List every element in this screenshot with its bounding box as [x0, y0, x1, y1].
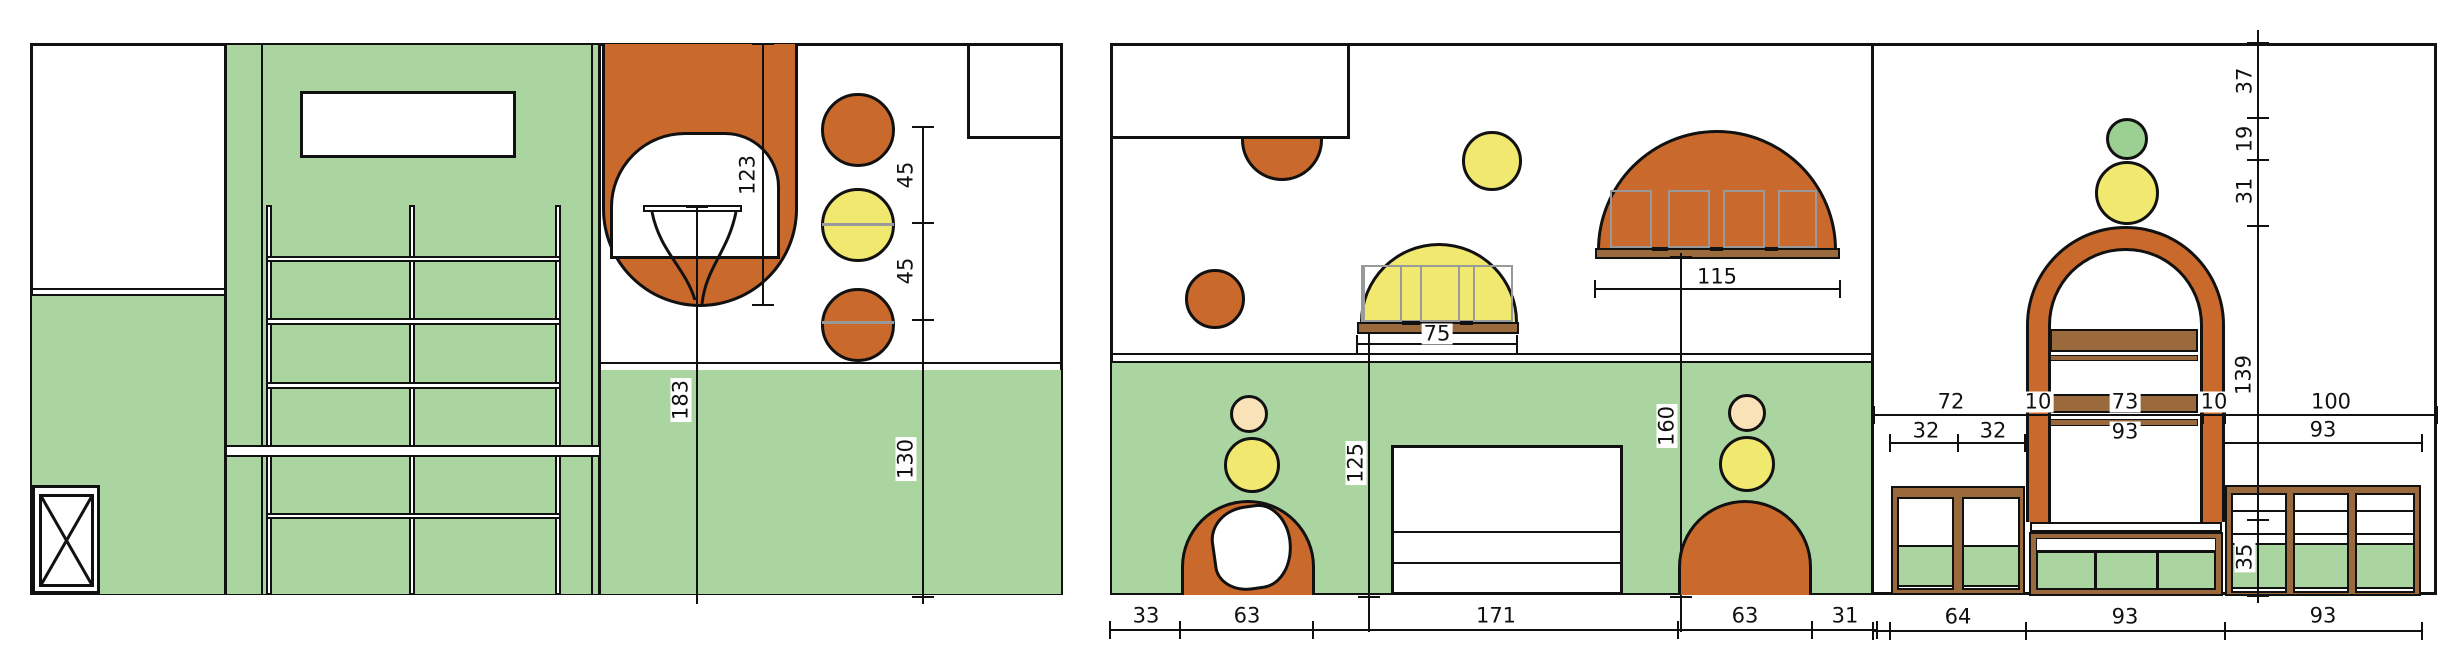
- dim-tick: [1873, 406, 1875, 424]
- shelf-post: [555, 205, 561, 595]
- shelf-post: [266, 205, 272, 595]
- shelf-post: [409, 205, 415, 595]
- dim-tick: [1356, 335, 1358, 353]
- window-opening: [300, 91, 516, 158]
- dim-tick: [1839, 280, 1841, 298]
- bay-line: [2233, 533, 2285, 535]
- arch-opening: [2048, 248, 2203, 522]
- dim-tick: [1957, 434, 1959, 452]
- dimension-line: [922, 127, 924, 604]
- dimension-line: [2224, 442, 2422, 444]
- dim-label-awning-width: 75: [1422, 324, 1453, 345]
- dim-tick: [2247, 42, 2269, 44]
- panel-edge: [224, 43, 227, 595]
- cabinet-bay: [1897, 497, 1954, 590]
- dim-tick: [1670, 596, 1692, 598]
- dim-label-wainscot-height: 130: [896, 437, 917, 481]
- dimension-line: [1110, 629, 1877, 631]
- dim-label-63a: 63: [1232, 606, 1263, 627]
- chair-rail-line: [1112, 353, 1872, 355]
- dim-tick: [1811, 621, 1813, 639]
- dim-tick: [2247, 519, 2269, 521]
- bar-dash: [1765, 247, 1778, 251]
- dim-label-32b: 32: [1978, 421, 2009, 442]
- cabinet-bay-green: [1964, 545, 2018, 587]
- arch-shelf: [2050, 329, 2198, 352]
- dim-tick: [686, 206, 708, 208]
- dim-label-10b: 10: [2199, 392, 2230, 413]
- canopy-pane: [1363, 265, 1402, 322]
- figure-head-circle: [1230, 395, 1268, 433]
- dim-label-139: 139: [2234, 353, 2255, 397]
- dim-tick: [2247, 159, 2269, 161]
- dim-label-93b: 93: [2308, 420, 2339, 441]
- cabinet-bay-green: [1899, 545, 1952, 587]
- bay-line: [2357, 533, 2413, 535]
- dimension-line: [696, 205, 698, 604]
- table-pedestal: [640, 212, 760, 307]
- tower-yellow-circle: [2095, 161, 2159, 225]
- dim-label-93a: 93: [2110, 422, 2141, 443]
- sideboard-line: [1392, 531, 1622, 533]
- dim-tick: [1358, 596, 1380, 598]
- dim-tick: [912, 319, 934, 321]
- dim-label-table-height: 183: [671, 378, 692, 422]
- dim-label-32a: 32: [1911, 421, 1942, 442]
- dim-tick: [2224, 622, 2226, 640]
- dim-label-31: 31: [2235, 176, 2256, 207]
- dim-tick: [1594, 280, 1596, 298]
- dim-label-72: 72: [1936, 392, 1967, 413]
- dim-tick: [1516, 335, 1518, 353]
- dim-tick: [912, 596, 934, 598]
- figure-head-circle: [1728, 394, 1766, 432]
- wall-circle-orange: [1185, 269, 1245, 329]
- bar-dash: [1402, 321, 1420, 325]
- figure-torso-circle: [1224, 437, 1280, 493]
- dim-label-canopy-width: 115: [1695, 267, 1739, 288]
- soffit-notch: [1110, 43, 1350, 139]
- dim-label-circle-gap-1: 45: [896, 160, 917, 191]
- dim-tick: [1677, 621, 1679, 639]
- arch-shelf-strip: [2050, 355, 2198, 361]
- dim-label-circle-gap-2: 45: [896, 256, 917, 287]
- dim-label-93c: 93: [2110, 607, 2141, 628]
- canopy-pane: [1473, 265, 1513, 322]
- wall-circle-yellow: [1462, 131, 1522, 191]
- bar-dash: [1460, 321, 1473, 325]
- dim-label-73: 73: [2110, 392, 2141, 413]
- dimension-line: [1874, 414, 2437, 416]
- dim-tick: [2421, 622, 2423, 640]
- bay-line: [2357, 510, 2413, 512]
- shelf-board: [266, 513, 561, 519]
- dim-tick: [1670, 256, 1692, 258]
- bay-line: [2295, 533, 2347, 535]
- cabinet-bay-green: [2295, 543, 2347, 589]
- bench-rail: [2036, 538, 2216, 551]
- panel-stile: [591, 43, 593, 595]
- dim-tick: [2436, 406, 2438, 424]
- wall-circle-orange-1: [821, 93, 895, 167]
- canopy-pane: [1723, 190, 1765, 248]
- dim-tick: [752, 43, 774, 45]
- sideboard-line: [1392, 562, 1622, 564]
- outlet-x-icon: [39, 494, 94, 587]
- chair-rail-line: [31, 288, 225, 290]
- circle-gray-line: [822, 223, 894, 226]
- dim-tick: [1889, 622, 1891, 640]
- counter-rail-band: [225, 445, 601, 457]
- chair-rail-line: [31, 294, 225, 296]
- dimension-line: [1873, 630, 2422, 632]
- bay-line: [2233, 510, 2285, 512]
- bay-line: [2295, 510, 2347, 512]
- dimension-line: [762, 44, 764, 305]
- section-divider: [1871, 44, 1874, 595]
- dim-label-19: 19: [2235, 124, 2256, 155]
- dim-tick: [912, 222, 934, 224]
- shelf-board: [266, 382, 561, 389]
- dim-label-37: 37: [2235, 66, 2256, 97]
- dim-tick: [2247, 117, 2269, 119]
- dim-label-64: 64: [1943, 607, 1974, 628]
- chair-rail-line: [1112, 361, 1872, 363]
- shelf-board: [266, 318, 561, 325]
- dim-label-171: 171: [1474, 606, 1518, 627]
- dimension-line: [1368, 334, 1370, 632]
- dim-tick: [2247, 595, 2269, 597]
- dim-tick: [912, 126, 934, 128]
- cabinet-bay: [2293, 493, 2349, 593]
- bar-dash: [1710, 247, 1723, 251]
- dim-label-10a: 10: [2023, 392, 2054, 413]
- dim-label-opening-height: 123: [738, 153, 759, 197]
- dim-tick: [2421, 434, 2423, 452]
- canopy-pane: [1610, 190, 1652, 248]
- figure-torso-circle: [1719, 436, 1775, 492]
- bench-divider: [2156, 551, 2159, 590]
- dim-tick: [2024, 434, 2026, 452]
- soffit-notch: [967, 43, 1063, 139]
- chair-rail-line: [601, 362, 1061, 364]
- elevation-drawing-canvas: 123 183 45 45 130: [0, 0, 2451, 648]
- canopy-pane: [1668, 190, 1710, 248]
- cabinet-bay: [2355, 493, 2415, 593]
- dim-tick: [752, 304, 774, 306]
- dim-label-100: 100: [2309, 392, 2353, 413]
- bench-drawers: [2036, 551, 2216, 590]
- dim-tick: [2247, 225, 2269, 227]
- dim-tick: [1872, 622, 1874, 640]
- dim-label-93d: 93: [2308, 606, 2339, 627]
- canopy-pane: [1420, 265, 1460, 322]
- cabinet-bay-green: [2357, 543, 2413, 589]
- panel-stile: [261, 43, 263, 595]
- dimension-line: [2257, 30, 2259, 603]
- cabinet-bay: [1962, 497, 2020, 590]
- dim-label-63b: 63: [1730, 606, 1761, 627]
- bar-dash: [1652, 247, 1668, 251]
- dim-tick: [2025, 622, 2027, 640]
- bench-top-strip: [2030, 522, 2222, 532]
- dim-label-sideboard-height: 125: [1346, 441, 1367, 485]
- dim-tick: [1179, 621, 1181, 639]
- dim-tick: [1109, 621, 1111, 639]
- sideboard: [1391, 445, 1623, 595]
- dim-label-33: 33: [1131, 606, 1162, 627]
- dim-tick: [1312, 621, 1314, 639]
- circle-gray-line: [822, 321, 894, 324]
- dim-label-31b: 31: [1830, 606, 1861, 627]
- canopy-pane: [1778, 190, 1817, 248]
- shelf-board: [266, 256, 561, 262]
- dim-label-canopy-height: 160: [1657, 404, 1678, 448]
- dim-tick: [1889, 434, 1891, 452]
- wall-circle-orange-2: [821, 288, 895, 362]
- bench-divider: [2094, 551, 2097, 590]
- tower-green-circle: [2106, 118, 2148, 160]
- dim-label-35: 35: [2235, 542, 2256, 573]
